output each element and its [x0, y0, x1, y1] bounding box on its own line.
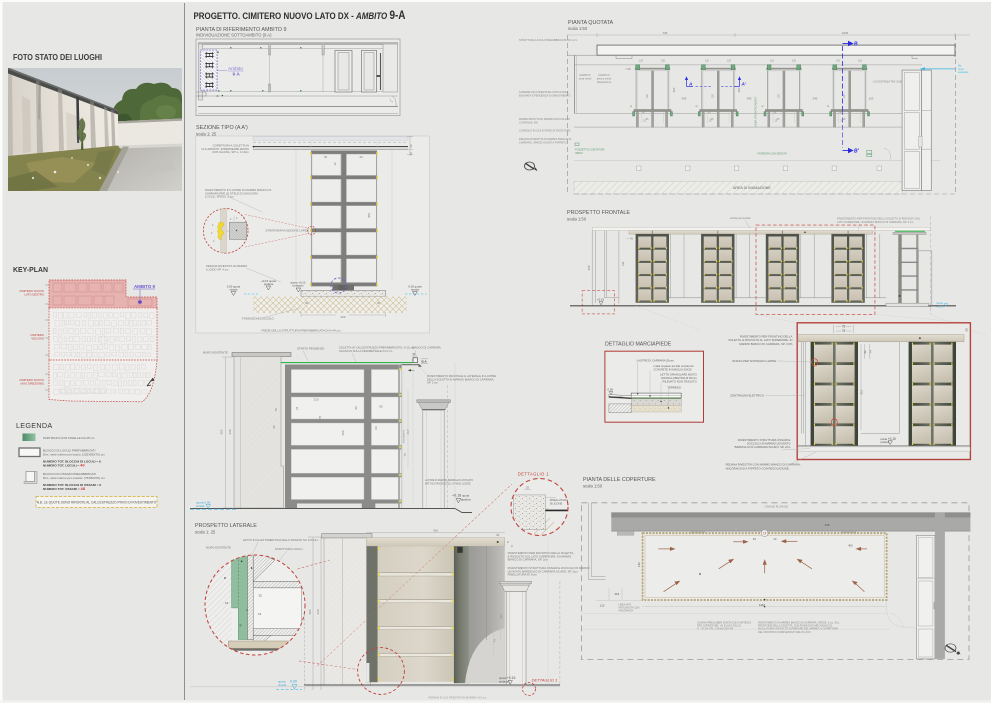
svg-text:B': B': [854, 149, 860, 155]
svg-text:scala 1: 25: scala 1: 25: [195, 530, 216, 535]
svg-text:RILEVATO NON TESSUTO: RILEVATO NON TESSUTO: [663, 380, 698, 384]
svg-text:30: 30: [377, 301, 381, 305]
svg-text:417: 417: [860, 389, 864, 394]
svg-text:FIORIERA CON SEDUTA: FIORIERA CON SEDUTA: [757, 152, 787, 156]
svg-text:140: 140: [637, 562, 641, 567]
svg-text:12: 12: [333, 162, 337, 166]
svg-text:PROSPETTO LATERALE: PROSPETTO LATERALE: [195, 523, 257, 529]
svg-text:STAFFA PER SOSTEGNO LAPIDE: STAFFA PER SOSTEGNO LAPIDE: [732, 359, 776, 363]
svg-text:PROSPETTO FRONTALE: PROSPETTO FRONTALE: [567, 210, 630, 216]
svg-text:240: 240: [747, 97, 752, 101]
svg-text:SP. 2 cm: SP. 2 cm: [427, 381, 439, 385]
svg-text:548: 548: [825, 523, 830, 527]
svg-text:LINEA VITA ANTICADUTA: LINEA VITA ANTICADUTA: [754, 97, 758, 128]
svg-text:giardino: giardino: [461, 498, 471, 502]
svg-text:CARRARA, SPAZIO GIUNTI A TAPPE: CARRARA, SPAZIO GIUNTI A TAPPETO: [519, 140, 567, 144]
svg-text:A: A: [688, 82, 692, 87]
svg-text:PIEDE DELLA STRUTTURA PREFABBR: PIEDE DELLA STRUTTURA PREFABBRICATA DI H…: [262, 329, 341, 333]
svg-text:PIANTA DELLE COPERTURE: PIANTA DELLE COPERTURE: [583, 477, 656, 483]
svg-text:70: 70: [274, 408, 278, 412]
svg-text:42: 42: [239, 623, 243, 627]
svg-text:LATO DESTRO: LATO DESTRO: [25, 292, 45, 296]
svg-text:CONTINUA, 5%: CONTINUA, 5%: [519, 120, 538, 124]
svg-text:75: 75: [842, 329, 846, 333]
svg-text:SGUSCIO SULLA PERIMETRALE DI 3: SGUSCIO SULLA PERIMETRALE DI 3 cm: [339, 349, 393, 353]
svg-text:417: 417: [499, 613, 503, 618]
svg-text:CON RETE IN MAGLIA 20X20: CON RETE IN MAGLIA 20X20: [654, 367, 693, 371]
svg-text:44: 44: [359, 155, 363, 159]
svg-text:400: 400: [737, 87, 741, 92]
svg-text:PARTIZIONI CON TAVELLE DA 25 c: PARTIZIONI CON TAVELLE DA 25 cm: [43, 436, 95, 440]
svg-text:34: 34: [295, 407, 299, 411]
svg-text:CAMPO F: CAMPO F: [579, 73, 591, 77]
svg-text:Dim. nette interne per loculo:: Dim. nette interne per loculo: (225X85X7…: [43, 452, 105, 456]
svg-text:STRUTTURA LOCULI PREFABBRICATA: STRUTTURA LOCULI PREFABBRICATA IN C.A.V.: [519, 38, 578, 42]
svg-text:NUMERO TOT. LOCULI = 40: NUMERO TOT. LOCULI = 40: [43, 462, 85, 467]
svg-text:20: 20: [965, 328, 969, 332]
svg-text:795: 795: [663, 31, 668, 35]
svg-text:STRUTTURA LOCULI: STRUTTURA LOCULI: [275, 547, 303, 551]
svg-text:74: 74: [869, 350, 873, 354]
svg-text:240: 240: [813, 97, 818, 101]
svg-text:120: 120: [661, 60, 666, 63]
svg-text:400: 400: [341, 430, 345, 435]
svg-text:440: 440: [228, 429, 232, 434]
svg-text:10: 10: [409, 152, 413, 156]
svg-text:RISELLATURA: RISELLATURA: [550, 498, 568, 502]
svg-text:AMBITO 9: AMBITO 9: [134, 284, 155, 289]
svg-text:scritta perimetrale: scritta perimetrale: [730, 216, 751, 220]
svg-text:260: 260: [340, 315, 345, 319]
svg-text:112: 112: [600, 604, 605, 608]
svg-text:marciapiede: marciapiede: [612, 396, 624, 398]
svg-text:16: 16: [225, 601, 229, 605]
svg-text:strada: strada: [278, 683, 287, 687]
svg-text:CANALE PLUVIALE: CANALE PLUVIALE: [765, 505, 789, 509]
svg-text:TERRENO: TERRENO: [667, 386, 681, 390]
svg-text:80: 80: [379, 405, 383, 409]
svg-text:MURO ESISTENTE: MURO ESISTENTE: [203, 351, 228, 355]
svg-text:LASTRE DI CARRARA 20mm: LASTRE DI CARRARA 20mm: [637, 359, 675, 363]
svg-text:LATO SUPERIORE, IN MARMO BIANC: LATO SUPERIORE, IN MARMO BIANCO DI CARRA…: [837, 220, 913, 224]
svg-text:120: 120: [858, 60, 863, 63]
svg-text:120: 120: [727, 60, 732, 63]
svg-text:Dim. nette interne per ossario: Dim. nette interne per ossario: (75X80X7…: [43, 476, 105, 480]
svg-text:50: 50: [413, 352, 417, 356]
svg-text:1025: 1025: [842, 31, 849, 35]
svg-text:SILICONE: SILICONE: [550, 501, 563, 505]
svg-text:103: 103: [869, 97, 874, 101]
svg-text:BIANCO DI CARRARA, SP. 2cm: BIANCO DI CARRARA, SP. 2cm: [508, 558, 549, 562]
svg-text:CAMPO F: CAMPO F: [598, 73, 610, 77]
svg-text:zona verde: zona verde: [579, 76, 592, 80]
svg-text:scala 1:50: scala 1:50: [567, 217, 587, 222]
svg-text:74: 74: [493, 639, 497, 643]
svg-text:14: 14: [258, 612, 262, 616]
svg-text:0.00: 0.00: [290, 680, 297, 684]
svg-text:400: 400: [672, 87, 676, 92]
svg-text:440: 440: [316, 609, 320, 614]
svg-text:120: 120: [770, 60, 775, 63]
svg-text:BIANCO DI CARRARA: BIANCO DI CARRARA: [412, 346, 441, 350]
svg-text:45: 45: [324, 155, 328, 159]
svg-text:25: 25: [259, 594, 263, 598]
svg-text:DETTAGLIO MARCIAPIEDE: DETTAGLIO MARCIAPIEDE: [605, 342, 672, 348]
svg-text:410: 410: [433, 529, 438, 533]
svg-text:RISELLATURA DI 3mm: RISELLATURA DI 3mm: [508, 573, 538, 577]
svg-text:30: 30: [305, 301, 309, 305]
svg-text:74: 74: [403, 453, 407, 457]
svg-text:120: 120: [836, 60, 841, 63]
svg-text:ANCORAGGI: ANCORAGGI: [618, 610, 633, 613]
svg-text:IDRICI: IDRICI: [575, 151, 583, 155]
svg-text:disposizione: disposizione: [597, 80, 612, 84]
svg-text:TI - SI 2% GPL, CANALIZZA 4%: TI - SI 2% GPL, CANALIZZA 4%: [697, 628, 734, 631]
svg-text:scala 1:50: scala 1:50: [583, 484, 603, 489]
svg-text:MARMO BIANCO DI CARRARA, SP. 3: MARMO BIANCO DI CARRARA, SP. 3 0%: [739, 342, 793, 346]
svg-text:ANCORAGGIO A TAPPETO CON REGO: ANCORAGGIO A TAPPETO CON REGOLAZIONE.: [726, 467, 790, 471]
svg-text:418: 418: [615, 592, 620, 596]
svg-text:STRATIGRAFIA SEZIONE LAPIDE: STRATIGRAFIA SEZIONE LAPIDE: [266, 228, 310, 232]
svg-text:+0.15: +0.15: [936, 304, 943, 308]
svg-text:strada: strada: [230, 288, 238, 292]
svg-text:BUGNATA E PENDENZA DI SMALTIME: BUGNATA E PENDENZA DI SMALTIMENTO: [519, 93, 571, 97]
svg-text:90: 90: [354, 406, 358, 410]
svg-text:25: 25: [409, 144, 413, 148]
svg-text:400: 400: [848, 543, 853, 547]
svg-text:240: 240: [682, 97, 687, 101]
svg-text:(AVO DIREZIONE): (AVO DIREZIONE): [20, 381, 44, 385]
svg-text:120: 120: [639, 60, 644, 63]
svg-text:PROGETTO. CIMITERO NUOVO LATO: PROGETTO. CIMITERO NUOVO LATO DX - AMBIT…: [194, 8, 406, 22]
svg-text:LETTO DI ALLETTAMENTO/LIVELLO: LETTO DI ALLETTAMENTO/LIVELLO RASATO SU …: [243, 538, 318, 542]
svg-text:404: 404: [308, 609, 312, 614]
svg-text:marciapiede: marciapiede: [403, 429, 406, 443]
svg-text:trottatoio: trottatoio: [293, 284, 304, 288]
svg-text:LOCULI, SPESS. 2 cm: LOCULI, SPESS. 2 cm: [205, 195, 234, 199]
svg-text:CON GUAINA, SP>L. 4 10cm: CON GUAINA, SP>L. 4 10cm: [212, 150, 250, 154]
svg-text:DETTAGLIO 1: DETTAGLIO 1: [518, 472, 550, 477]
svg-text:N.B. LE QUOTE SONO RIFERITE AL: N.B. LE QUOTE SONO RIFERITE AL CALCESTRU…: [37, 501, 157, 505]
svg-text:quota +0.15: quota +0.15: [881, 437, 897, 441]
svg-text:scala 1:50: scala 1:50: [568, 26, 588, 31]
svg-text:B: B: [854, 42, 858, 48]
svg-text:94: 94: [374, 426, 378, 430]
svg-text:esistente: esistente: [958, 70, 969, 74]
svg-text:414: 414: [621, 261, 625, 266]
svg-text:DEL FRONTINO COMPLESSIVO DEL P: DEL FRONTINO COMPLESSIVO DEL PLUVIO: [758, 631, 811, 634]
svg-text:A': A': [741, 82, 747, 87]
svg-text:PEDANA IN CLS RIVESTITA IN MAR: PEDANA IN CLS RIVESTITA IN MARMO H 15 cm: [429, 696, 487, 700]
svg-text:VECCHIO: VECCHIO: [31, 336, 45, 340]
svg-text:405: 405: [587, 265, 591, 270]
svg-text:120: 120: [705, 60, 710, 63]
svg-text:25: 25: [272, 425, 276, 429]
svg-text:SEZIONE TIPO (A A'): SEZIONE TIPO (A A'): [196, 125, 248, 131]
svg-text:120: 120: [792, 60, 797, 63]
svg-text:FOTO STATO DEI LUOGHI: FOTO STATO DEI LUOGHI: [13, 53, 102, 62]
svg-text:400: 400: [367, 213, 371, 218]
svg-text:70: 70: [318, 416, 322, 420]
svg-text:pedana: pedana: [264, 282, 274, 286]
svg-text:LEGENDA: LEGENDA: [16, 421, 52, 430]
svg-text:BARDIGLIO DI CARRARA SCURO, SP: BARDIGLIO DI CARRARA SCURO, SP. 2cm: [735, 445, 791, 449]
svg-text:strada: strada: [411, 288, 419, 292]
svg-text:INDIVIDUAZIONE SOTTOAMBITO (9: INDIVIDUAZIONE SOTTOAMBITO (9 A): [196, 33, 272, 38]
svg-text:KEY-PLAN: KEY-PLAN: [13, 265, 48, 274]
svg-text:9 A: 9 A: [233, 72, 241, 78]
svg-text:0.00: 0.00: [608, 388, 614, 392]
svg-text:CENTRALINA ELETTRICA: CENTRALINA ELETTRICA: [730, 393, 764, 397]
svg-text:DETTAGLIO 1: DETTAGLIO 1: [532, 678, 558, 683]
svg-text:78: 78: [842, 325, 846, 329]
svg-text:404: 404: [220, 429, 224, 434]
svg-text:strada: strada: [196, 504, 205, 508]
svg-text:BATTISCOPA/ZOCCOLI, A FIALE LU: BATTISCOPA/ZOCCOLI, A FIALE LUCIDE: [425, 482, 471, 485]
svg-text:40: 40: [496, 533, 500, 537]
svg-text:LUCIDO SP. 4 cm: LUCIDO SP. 4 cm: [206, 267, 229, 271]
svg-text:STRATO PENDENZE: STRATO PENDENZE: [297, 347, 324, 351]
svg-text:NUMERO TOT. OSSARI = 48: NUMERO TOT. OSSARI = 48: [43, 486, 86, 491]
svg-text:CORDOLO IN CLS IN FASE DI TESS: CORDOLO IN CLS IN FASE DI TESSITURA: [519, 129, 571, 133]
svg-text:+0.15: +0.15: [597, 298, 605, 302]
svg-text:92: 92: [863, 350, 867, 354]
svg-text:AREA DI INUMAZIONE: AREA DI INUMAZIONE: [733, 186, 771, 190]
svg-text:pedana: pedana: [499, 680, 509, 684]
svg-text:B.A: B.A: [422, 360, 428, 364]
svg-text:220: 220: [313, 398, 318, 402]
svg-text:7.45: 7.45: [625, 67, 631, 71]
svg-text:FONDAZIONI/ZOCCOLO: FONDAZIONI/ZOCCOLO: [242, 317, 275, 321]
svg-text:MURO ESISTENTE: MURO ESISTENTE: [206, 546, 231, 550]
svg-text:area a verde: area a verde: [597, 76, 612, 80]
